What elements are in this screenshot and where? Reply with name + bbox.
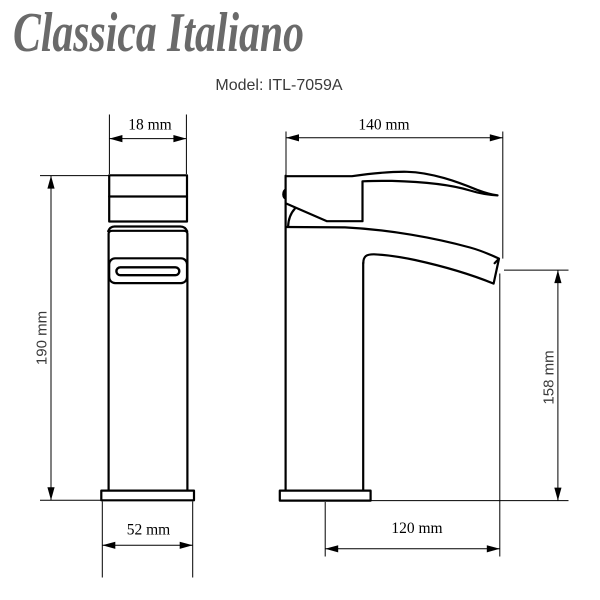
svg-text:190 mm: 190 mm xyxy=(34,311,51,365)
svg-text:52 mm: 52 mm xyxy=(127,522,171,539)
svg-text:Model: ITL-7059A: Model: ITL-7059A xyxy=(215,77,343,94)
svg-text:140 mm: 140 mm xyxy=(358,117,409,134)
svg-text:Classica Italiano: Classica Italiano xyxy=(13,2,304,64)
svg-text:18 mm: 18 mm xyxy=(128,117,172,134)
svg-text:158 mm: 158 mm xyxy=(541,350,558,404)
svg-text:120 mm: 120 mm xyxy=(391,520,442,537)
